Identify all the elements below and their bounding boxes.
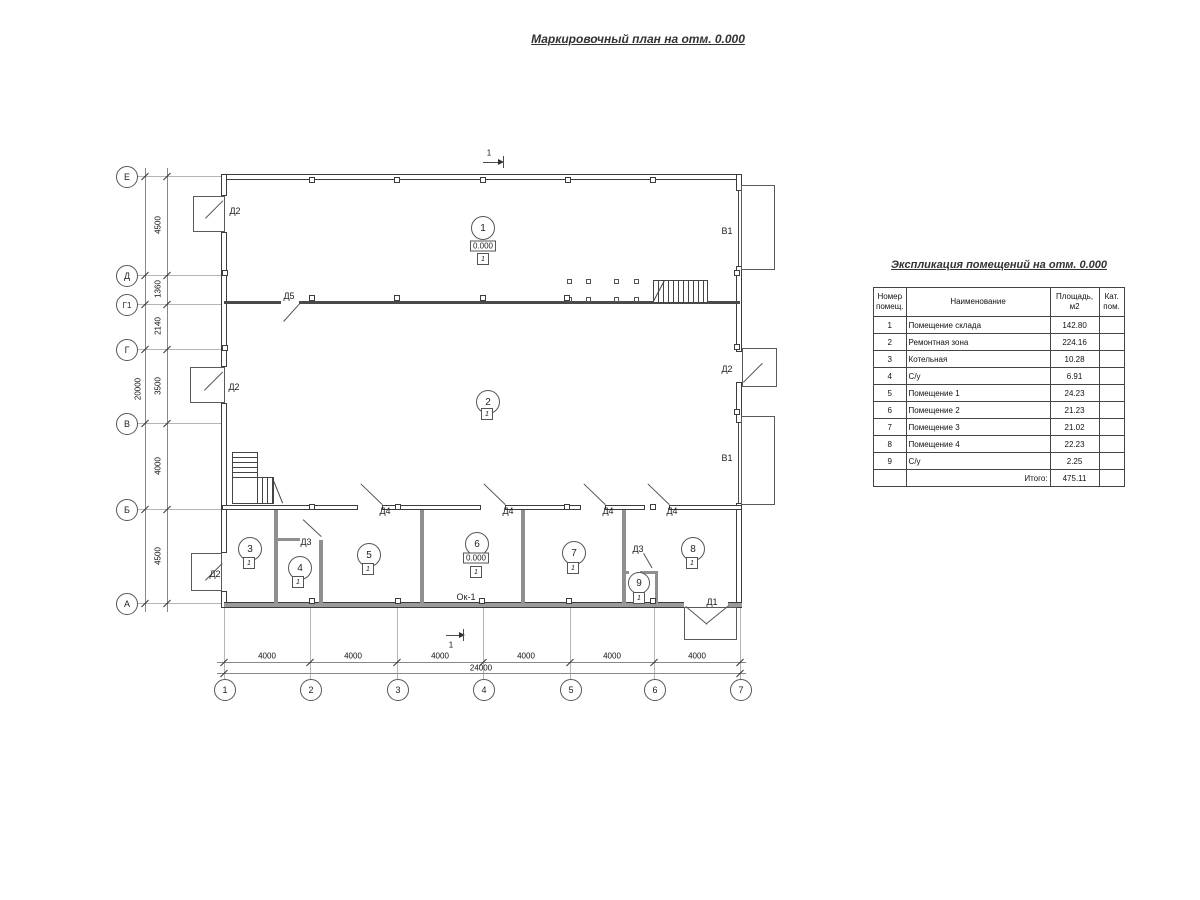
column-marker — [309, 504, 315, 510]
room-tag: 1 — [567, 562, 579, 574]
cell-name: Помещение 2 — [906, 402, 1050, 419]
room-level: 0.000 — [463, 553, 489, 564]
dim-text: 4000 — [154, 457, 163, 475]
cell-area: 2.25 — [1050, 453, 1099, 470]
dim-text: 4500 — [154, 216, 163, 234]
axis-line — [310, 608, 311, 679]
door-swing — [303, 519, 322, 537]
stairs-hatch — [232, 452, 258, 478]
cell-area: 21.23 — [1050, 402, 1099, 419]
header-cat: Кат. пом. — [1099, 288, 1124, 317]
room-bubble: 9 — [628, 572, 650, 594]
cell-num: 3 — [874, 351, 907, 368]
cell-area: 22.23 — [1050, 436, 1099, 453]
cell-cat — [1099, 317, 1124, 334]
cell-num: 1 — [874, 317, 907, 334]
door-swing — [360, 483, 382, 505]
schedule-title: Экспликация помещений на отм. 0.000 — [891, 259, 1107, 271]
axis-line — [137, 423, 222, 424]
cell-num: 2 — [874, 334, 907, 351]
cell-num: 6 — [874, 402, 907, 419]
column-marker — [479, 598, 485, 604]
column-dot — [586, 297, 591, 302]
column-dot — [614, 279, 619, 284]
column-marker — [480, 177, 486, 183]
cell-name: Помещение 4 — [906, 436, 1050, 453]
wall-exterior-left — [221, 174, 227, 196]
column-marker — [394, 177, 400, 183]
cell-cat — [1099, 436, 1124, 453]
column-marker — [309, 295, 315, 301]
room-schedule-table: Номер помещ. Наименование Площадь, м2 Ка… — [873, 287, 1125, 487]
axis-bubble-col: 4 — [473, 679, 495, 701]
door-swing — [647, 483, 669, 505]
room-tag: 1 — [686, 557, 698, 569]
axis-line — [570, 608, 571, 679]
cell-empty — [1099, 470, 1124, 487]
page-title: Маркировочный план на отм. 0.000 — [531, 32, 745, 46]
cell-empty — [874, 470, 907, 487]
column-marker — [650, 504, 656, 510]
table-row: 3 Котельная 10.28 — [874, 351, 1125, 368]
door-label-d1: Д1 — [706, 597, 717, 607]
cell-name: Помещение 3 — [906, 419, 1050, 436]
cell-num: 8 — [874, 436, 907, 453]
axis-bubble-row: Б — [116, 499, 138, 521]
dim-line — [145, 168, 146, 612]
door-swing — [483, 483, 505, 505]
header-num: Номер помещ. — [874, 288, 907, 317]
cell-num: 9 — [874, 453, 907, 470]
column-dot — [586, 279, 591, 284]
porch — [742, 348, 777, 387]
room-tag: 1 — [481, 408, 493, 420]
section-mark-bottom-arrow-icon — [459, 632, 465, 638]
cell-area: 142.80 — [1050, 317, 1099, 334]
cell-cat — [1099, 402, 1124, 419]
wall-partition — [622, 510, 626, 603]
column-marker — [565, 177, 571, 183]
column-marker — [222, 270, 228, 276]
room-bubble: 1 — [471, 216, 495, 240]
total-label: Итого: — [906, 470, 1050, 487]
dim-line — [167, 168, 168, 612]
table-row: 8 Помещение 4 22.23 — [874, 436, 1125, 453]
gate-label-v1: В1 — [721, 453, 732, 463]
table-row: 4 С/у 6.91 — [874, 368, 1125, 385]
gate-label-v1: В1 — [721, 226, 732, 236]
wall-exterior-right — [736, 266, 742, 352]
dim-text: 2140 — [154, 317, 163, 335]
wall-partition — [319, 540, 323, 603]
table-row: 1 Помещение склада 142.80 — [874, 317, 1125, 334]
axis-bubble-row: Г — [116, 339, 138, 361]
stairs-hatch — [257, 477, 274, 504]
dim-text: 1360 — [154, 280, 163, 298]
column-marker — [564, 504, 570, 510]
column-marker — [734, 270, 740, 276]
room-tag: 1 — [633, 592, 645, 604]
cell-name: С/у — [906, 368, 1050, 385]
dim-line — [217, 673, 746, 674]
cell-cat — [1099, 385, 1124, 402]
cell-name: Котельная — [906, 351, 1050, 368]
cell-num: 5 — [874, 385, 907, 402]
wall-partition — [420, 510, 424, 603]
axis-bubble-col: 6 — [644, 679, 666, 701]
axis-line — [137, 176, 222, 177]
section-mark-top-tick — [503, 156, 504, 168]
cell-area: 224.16 — [1050, 334, 1099, 351]
dim-text: 4000 — [517, 652, 535, 661]
column-dot — [567, 279, 572, 284]
door-label-d2: Д2 — [228, 382, 239, 392]
wall-exterior-bottom — [224, 602, 684, 608]
column-marker — [395, 504, 401, 510]
ramp-gate — [741, 416, 775, 505]
cell-name: Помещение склада — [906, 317, 1050, 334]
dim-text: 4500 — [154, 547, 163, 565]
wall-partition-stub — [276, 538, 300, 541]
wall-partition-stub — [622, 571, 629, 574]
axis-line — [137, 349, 222, 350]
section-mark-bottom-tick — [463, 629, 464, 641]
axis-bubble-col: 5 — [560, 679, 582, 701]
door-label-d3: Д3 — [300, 537, 311, 547]
axis-line — [137, 275, 222, 276]
axis-line — [224, 608, 225, 679]
axis-bubble-row: Д — [116, 265, 138, 287]
cell-num: 7 — [874, 419, 907, 436]
section-mark-top-label: 1 — [487, 149, 491, 158]
column-marker — [222, 345, 228, 351]
door-swing — [283, 303, 300, 322]
drawing-sheet: Маркировочный план на отм. 0.000 Эксплик… — [0, 0, 1200, 900]
axis-bubble-row: В — [116, 413, 138, 435]
header-name: Наименование — [906, 288, 1050, 317]
column-marker — [564, 295, 570, 301]
dim-text: 4000 — [603, 652, 621, 661]
cell-area: 10.28 — [1050, 351, 1099, 368]
wall-interior-b — [222, 505, 358, 510]
cell-name: С/у — [906, 453, 1050, 470]
axis-bubble-col: 3 — [387, 679, 409, 701]
cell-area: 21.02 — [1050, 419, 1099, 436]
table-row: 7 Помещение 3 21.02 — [874, 419, 1125, 436]
door-label-d2: Д2 — [229, 206, 240, 216]
column-marker — [394, 295, 400, 301]
door-label-d4: Д4 — [502, 506, 513, 516]
dim-text: 3500 — [154, 377, 163, 395]
room-tag: 1 — [362, 563, 374, 575]
door-label-d5: Д5 — [283, 291, 294, 301]
cell-num: 4 — [874, 368, 907, 385]
cell-name: Помещение 1 — [906, 385, 1050, 402]
window-label-ok1: Ок-1 — [457, 592, 476, 602]
cell-cat — [1099, 368, 1124, 385]
gate-leaf-line — [738, 191, 739, 266]
wall-exterior-left — [221, 403, 227, 553]
room-tag: 1 — [292, 576, 304, 588]
gate-leaf-line — [738, 423, 739, 503]
dim-text: 4000 — [258, 652, 276, 661]
room-tag: 1 — [243, 557, 255, 569]
room-tag: 1 — [470, 566, 482, 578]
axis-bubble-row: А — [116, 593, 138, 615]
wall-exterior-right — [736, 503, 742, 608]
door-label-d4: Д4 — [379, 506, 390, 516]
dim-text-total: 20000 — [134, 378, 143, 400]
dim-text: 4000 — [344, 652, 362, 661]
axis-bubble-col: 2 — [300, 679, 322, 701]
room-level: 0.000 — [470, 241, 496, 252]
room-tag: 1 — [477, 253, 489, 265]
axis-line — [137, 509, 222, 510]
table-header-row: Номер помещ. Наименование Площадь, м2 Ка… — [874, 288, 1125, 317]
cell-area: 6.91 — [1050, 368, 1099, 385]
axis-line — [740, 608, 741, 679]
axis-bubble-col: 7 — [730, 679, 752, 701]
cell-area: 24.23 — [1050, 385, 1099, 402]
axis-bubble-row: Е — [116, 166, 138, 188]
door-label-d3: Д3 — [632, 544, 643, 554]
table-row: 9 С/у 2.25 — [874, 453, 1125, 470]
cell-cat — [1099, 453, 1124, 470]
door-label-d4: Д4 — [666, 506, 677, 516]
column-marker — [480, 295, 486, 301]
axis-line — [137, 603, 222, 604]
axis-line — [137, 304, 222, 305]
table-total-row: Итого: 475.11 — [874, 470, 1125, 487]
cell-cat — [1099, 419, 1124, 436]
wall-partition — [274, 510, 278, 603]
wall-interior-g1 — [224, 301, 281, 304]
dim-text-total: 24000 — [470, 664, 492, 673]
cell-cat — [1099, 351, 1124, 368]
wall-partition — [521, 510, 525, 603]
cell-name: Ремонтная зона — [906, 334, 1050, 351]
column-marker — [309, 177, 315, 183]
column-marker — [309, 598, 315, 604]
door-leader-line — [643, 553, 652, 568]
table-row: 5 Помещение 1 24.23 — [874, 385, 1125, 402]
dim-text: 4000 — [431, 652, 449, 661]
door-label-d2: Д2 — [721, 364, 732, 374]
column-marker — [566, 598, 572, 604]
dim-text: 4000 — [688, 652, 706, 661]
column-dot — [634, 297, 639, 302]
table-row: 2 Ремонтная зона 224.16 — [874, 334, 1125, 351]
column-marker — [650, 598, 656, 604]
ramp-gate — [741, 185, 775, 270]
door-label-d2: Д2 — [209, 569, 220, 579]
axis-line — [397, 608, 398, 679]
section-mark-bottom-label: 1 — [449, 641, 453, 650]
table-row: 6 Помещение 2 21.23 — [874, 402, 1125, 419]
column-dot — [614, 297, 619, 302]
door-label-d4: Д4 — [602, 506, 613, 516]
axis-line — [654, 608, 655, 679]
stairs-landing — [232, 477, 258, 504]
axis-bubble-col: 1 — [214, 679, 236, 701]
door-swing — [583, 483, 605, 505]
column-marker — [734, 409, 740, 415]
header-area: Площадь, м2 — [1050, 288, 1099, 317]
column-dot — [634, 279, 639, 284]
column-marker — [650, 177, 656, 183]
cell-cat — [1099, 334, 1124, 351]
column-marker — [734, 344, 740, 350]
axis-bubble-row: Г1 — [116, 294, 138, 316]
column-marker — [395, 598, 401, 604]
wall-interior-b — [669, 505, 742, 510]
total-value: 475.11 — [1050, 470, 1099, 487]
